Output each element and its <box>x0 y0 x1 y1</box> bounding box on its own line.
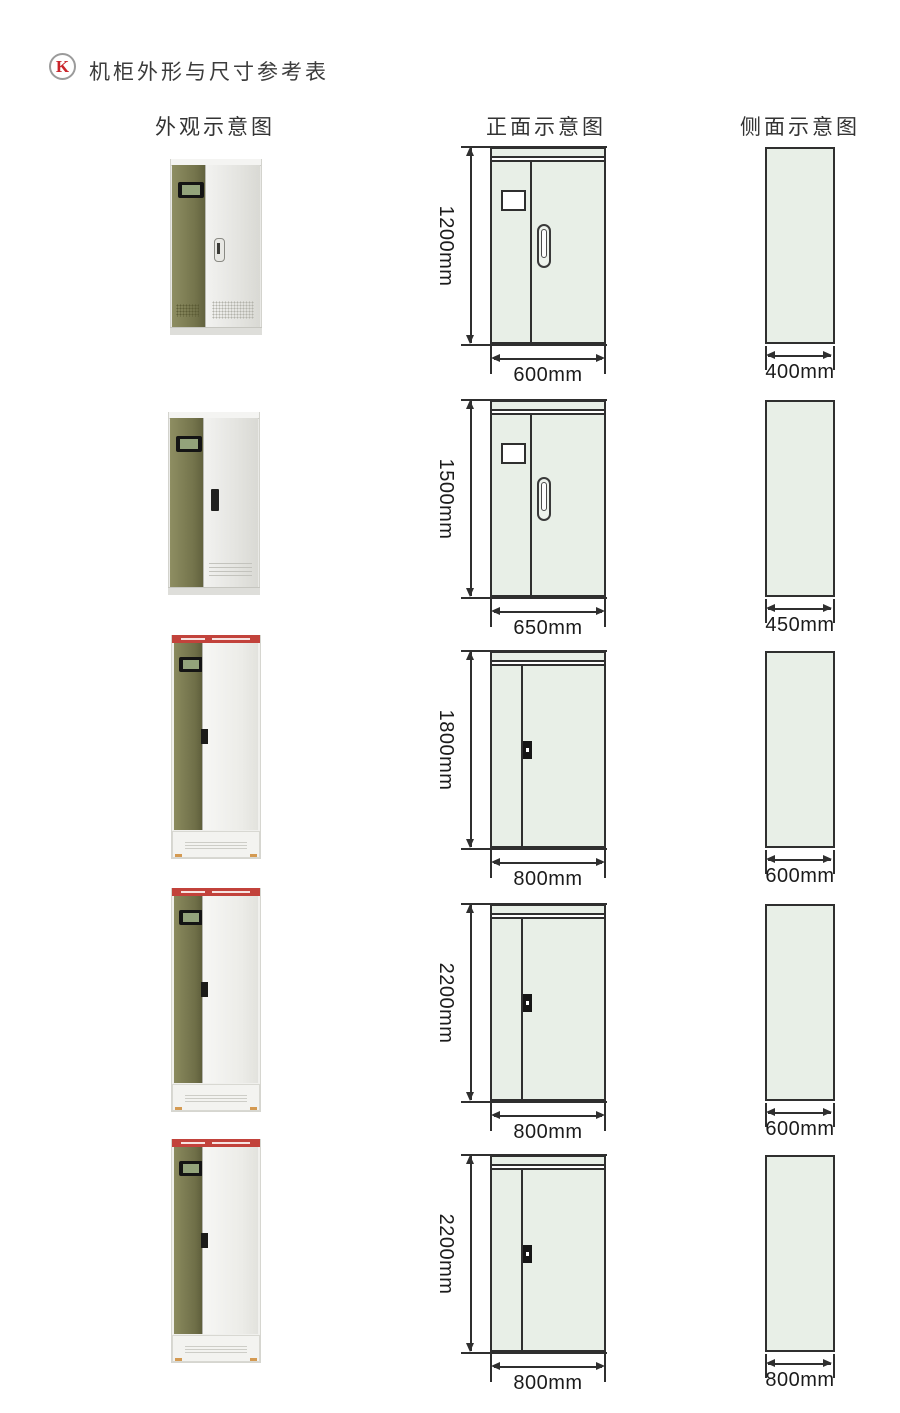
photo-base-plinth <box>172 831 260 858</box>
cabinet-photo <box>171 1139 261 1363</box>
side-cabinet-outline <box>765 147 835 344</box>
cabinet-foot <box>175 1358 182 1361</box>
depth-dimension-label: 450mm <box>760 614 840 637</box>
photo-door-handle <box>201 982 208 997</box>
arrowhead-icon <box>466 1155 474 1164</box>
width-dimension-label: 800mm <box>490 1372 606 1395</box>
banner-text-mark <box>181 891 206 893</box>
height-dimension-line <box>470 905 472 1100</box>
plinth-vent-lines <box>185 1346 247 1353</box>
arrowhead-icon <box>466 839 474 848</box>
cabinet-body <box>492 1168 604 1350</box>
height-dimension-label: 1800mm <box>435 690 457 810</box>
arrowhead-icon <box>766 1108 775 1116</box>
door-latch-handle <box>523 994 532 1012</box>
arrowhead-icon <box>466 400 474 409</box>
photo-base-plinth <box>170 327 262 335</box>
photo-base-plinth <box>172 1335 260 1362</box>
photo-red-banner <box>172 888 260 896</box>
side-cabinet-outline <box>765 651 835 848</box>
height-dimension-line <box>470 401 472 596</box>
arrowhead-icon <box>823 855 832 863</box>
handle-inner <box>541 229 547 258</box>
photo-screen-glass <box>182 185 200 195</box>
arrowhead-icon <box>766 855 775 863</box>
banner-text-mark <box>212 638 249 640</box>
latch-keyhole <box>526 1252 529 1256</box>
cabinet-foot <box>250 854 257 857</box>
front-cabinet-outline <box>490 904 606 1101</box>
width-dimension-label: 650mm <box>490 617 606 640</box>
photo-vent-grille <box>176 304 200 317</box>
dimension-extension-line <box>461 597 607 599</box>
photo-door-handle <box>201 729 208 744</box>
height-dimension-label: 2200mm <box>435 1194 457 1314</box>
photo-screen-glass <box>180 439 198 449</box>
latch-keyhole <box>526 748 529 752</box>
photo-screen-glass <box>183 1164 199 1173</box>
depth-dimension-line <box>768 1112 831 1114</box>
cabinet-foot <box>175 1107 182 1110</box>
cabinet-photo <box>171 888 261 1112</box>
cabinet-row: 1200mm 600mm 400mm <box>0 143 900 395</box>
arrowhead-icon <box>491 607 500 615</box>
side-cabinet-outline <box>765 904 835 1101</box>
photo-door-panel <box>202 643 259 830</box>
arrowhead-icon <box>466 651 474 660</box>
cabinet-row: 2200mm 800mm 600mm <box>0 900 900 1152</box>
column-header-side: 侧面示意图 <box>700 111 900 141</box>
banner-text-mark <box>181 1142 206 1144</box>
arrowhead-icon <box>823 1359 832 1367</box>
arrowhead-icon <box>766 604 775 612</box>
side-cabinet-outline <box>765 1155 835 1352</box>
cabinet-body <box>492 917 604 1099</box>
arrowhead-icon <box>596 858 605 866</box>
height-dimension-label: 1500mm <box>435 439 457 559</box>
cabinet-foot <box>250 1358 257 1361</box>
arrowhead-icon <box>491 1362 500 1370</box>
arrowhead-icon <box>466 904 474 913</box>
banner-text-mark <box>181 638 206 640</box>
arrowhead-icon <box>466 1092 474 1101</box>
height-dimension-label: 1200mm <box>435 186 457 306</box>
photo-screen-glass <box>183 913 199 922</box>
arrowhead-icon <box>491 1111 500 1119</box>
height-dimension-line <box>470 148 472 343</box>
door-latch-handle <box>523 741 532 759</box>
arrowhead-icon <box>823 1108 832 1116</box>
height-dimension-label: 2200mm <box>435 943 457 1063</box>
photo-red-banner <box>172 635 260 643</box>
cabinet-body <box>492 413 604 595</box>
width-dimension-line <box>494 1366 602 1368</box>
depth-dimension-line <box>768 859 831 861</box>
arrowhead-icon <box>766 1359 775 1367</box>
cabinet-row: 2200mm 800mm 800mm <box>0 1151 900 1403</box>
width-dimension-label: 600mm <box>490 364 606 387</box>
dimension-extension-line <box>461 1101 607 1103</box>
width-dimension-label: 800mm <box>490 868 606 891</box>
photo-door-handle <box>211 489 219 511</box>
width-dimension-line <box>494 358 602 360</box>
cabinet-body <box>492 160 604 342</box>
photo-door-panel <box>202 896 259 1083</box>
photo-display-screen <box>179 657 203 672</box>
front-cabinet-outline <box>490 400 606 597</box>
width-dimension-line <box>494 1115 602 1117</box>
handle-inner <box>541 482 547 511</box>
photo-display-screen <box>179 1161 203 1176</box>
photo-door-handle <box>201 1233 208 1248</box>
cabinet-foot <box>175 854 182 857</box>
cabinet-top-cap <box>492 653 604 662</box>
banner-text-mark <box>212 891 249 893</box>
arrowhead-icon <box>596 1362 605 1370</box>
photo-display-screen <box>178 182 204 198</box>
page-title: 机柜外形与尺寸参考表 <box>89 56 329 86</box>
depth-dimension-label: 800mm <box>760 1369 840 1392</box>
cabinet-photo <box>171 635 261 859</box>
photo-base-plinth <box>168 587 260 595</box>
door-divider-line <box>530 415 532 595</box>
depth-dimension-label: 600mm <box>760 865 840 888</box>
arrowhead-icon <box>491 858 500 866</box>
arrowhead-icon <box>596 607 605 615</box>
arrowhead-icon <box>491 354 500 362</box>
depth-dimension-line <box>768 355 831 357</box>
arrowhead-icon <box>466 588 474 597</box>
photo-display-screen <box>179 910 203 925</box>
arrowhead-icon <box>766 351 775 359</box>
width-dimension-label: 800mm <box>490 1121 606 1144</box>
arrowhead-icon <box>596 354 605 362</box>
door-window <box>501 190 526 211</box>
photo-handle-latch <box>217 243 220 254</box>
banner-text-mark <box>212 1142 249 1144</box>
height-dimension-line <box>470 1156 472 1351</box>
arrowhead-icon <box>596 1111 605 1119</box>
cabinet-top-cap <box>492 906 604 915</box>
door-divider-line <box>530 162 532 342</box>
door-latch-handle <box>523 1245 532 1263</box>
dimension-extension-line <box>461 848 607 850</box>
photo-door-panel <box>202 1147 259 1334</box>
front-cabinet-outline <box>490 651 606 848</box>
cabinet-top-cap <box>492 1157 604 1166</box>
cabinet-top-cap <box>492 149 604 158</box>
cabinet-foot <box>250 1107 257 1110</box>
cabinet-photo <box>170 159 262 335</box>
front-cabinet-outline <box>490 147 606 344</box>
cabinet-photo <box>168 412 260 595</box>
cabinet-row: 1500mm 650mm 450mm <box>0 396 900 648</box>
arrowhead-icon <box>466 335 474 344</box>
latch-keyhole <box>526 1001 529 1005</box>
front-cabinet-outline <box>490 1155 606 1352</box>
photo-red-banner <box>172 1139 260 1147</box>
door-oval-handle <box>537 224 551 268</box>
cabinet-row: 1800mm 800mm 600mm <box>0 647 900 899</box>
arrowhead-icon <box>466 147 474 156</box>
height-dimension-line <box>470 652 472 847</box>
photo-display-screen <box>176 436 202 452</box>
arrowhead-icon <box>823 604 832 612</box>
plinth-vent-lines <box>185 842 247 849</box>
depth-dimension-label: 600mm <box>760 1118 840 1141</box>
dimension-extension-line <box>461 344 607 346</box>
plinth-vent-lines <box>185 1095 247 1102</box>
door-oval-handle <box>537 477 551 521</box>
cabinet-body <box>492 664 604 846</box>
arrowhead-icon <box>823 351 832 359</box>
catalog-page: K 机柜外形与尺寸参考表 外观示意图 正面示意图 侧面示意图 1200mm <box>0 0 900 1413</box>
door-window <box>501 443 526 464</box>
photo-vent-grille <box>212 301 253 319</box>
k-badge: K <box>49 53 76 80</box>
photo-door-handle <box>214 238 225 262</box>
photo-vent-grille <box>209 563 251 577</box>
depth-dimension-label: 400mm <box>760 361 840 384</box>
column-header-front: 正面示意图 <box>446 111 646 141</box>
width-dimension-line <box>494 862 602 864</box>
width-dimension-line <box>494 611 602 613</box>
arrowhead-icon <box>466 1343 474 1352</box>
depth-dimension-line <box>768 608 831 610</box>
dimension-extension-line <box>461 1352 607 1354</box>
column-header-appearance: 外观示意图 <box>115 111 315 141</box>
cabinet-top-cap <box>492 402 604 411</box>
depth-dimension-line <box>768 1363 831 1365</box>
photo-base-plinth <box>172 1084 260 1111</box>
photo-screen-glass <box>183 660 199 669</box>
side-cabinet-outline <box>765 400 835 597</box>
